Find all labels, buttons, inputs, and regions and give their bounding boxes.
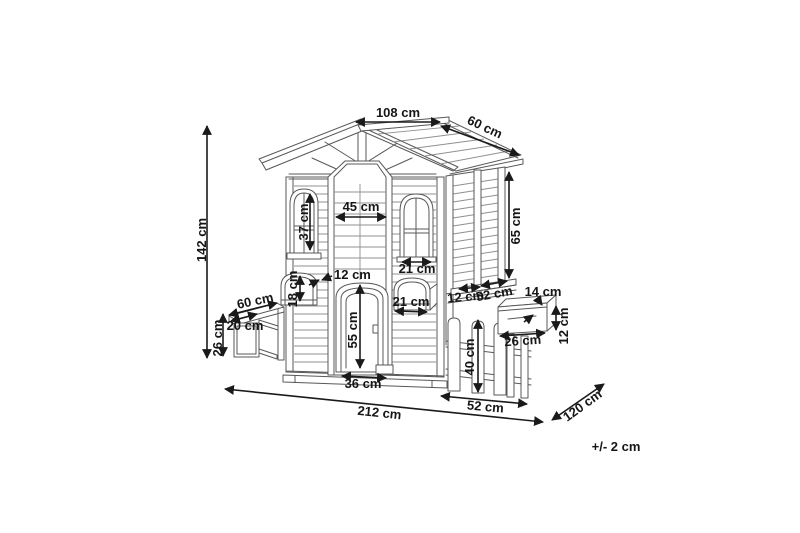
dim-label-bench-height: 26 cm [210, 320, 225, 357]
dim-label-total-depth: 120 cm [560, 386, 604, 424]
dim-label-mailbox-width: 26 cm [504, 332, 542, 350]
playhouse-drawing: 108 cm 60 cm 142 cm 45 cm 37 cm 21 cm 12… [0, 0, 800, 533]
dim-label-roof-ridge: 108 cm [376, 105, 420, 120]
dim-label-window-left-height: 37 cm [296, 204, 311, 241]
door-threshold [376, 365, 393, 374]
dim-label-side-wall-height: 65 cm [508, 208, 523, 245]
dimension-diagram: 108 cm 60 cm 142 cm 45 cm 37 cm 21 cm 12… [0, 0, 800, 533]
dim-label-flowerbox-left-height: 18 cm [285, 271, 300, 308]
dim-label-window-right-width: 21 cm [399, 261, 436, 276]
dim-line-flowerbox-right-width [395, 311, 427, 312]
dim-label-total-width: 212 cm [357, 403, 402, 423]
dim-label-fence-height: 40 cm [462, 339, 477, 376]
dim-label-total-height: 142 cm [194, 218, 209, 262]
dim-label-door-height: 55 cm [345, 312, 360, 349]
bench-shelf [259, 349, 277, 359]
dim-label-inner-width: 45 cm [343, 199, 380, 214]
dim-label-mailbox-depth: 14 cm [525, 284, 562, 299]
tolerance-note: +/- 2 cm [592, 439, 641, 454]
right-window [397, 194, 436, 262]
bench-post [278, 307, 284, 360]
dim-label-door-width: 36 cm [345, 376, 382, 391]
dim-label-flowerbox-right-width: 21 cm [393, 294, 430, 309]
left-window-sill [287, 253, 321, 259]
dim-label-mailbox-height: 12 cm [556, 308, 571, 345]
dim-label-bench-depth: 20 cm [227, 318, 264, 333]
side-wall-stud [474, 170, 481, 289]
fence-picket [448, 318, 460, 391]
dim-label-fence-length: 52 cm [466, 397, 504, 415]
dim-label-door-frame: 12 cm [334, 267, 371, 282]
